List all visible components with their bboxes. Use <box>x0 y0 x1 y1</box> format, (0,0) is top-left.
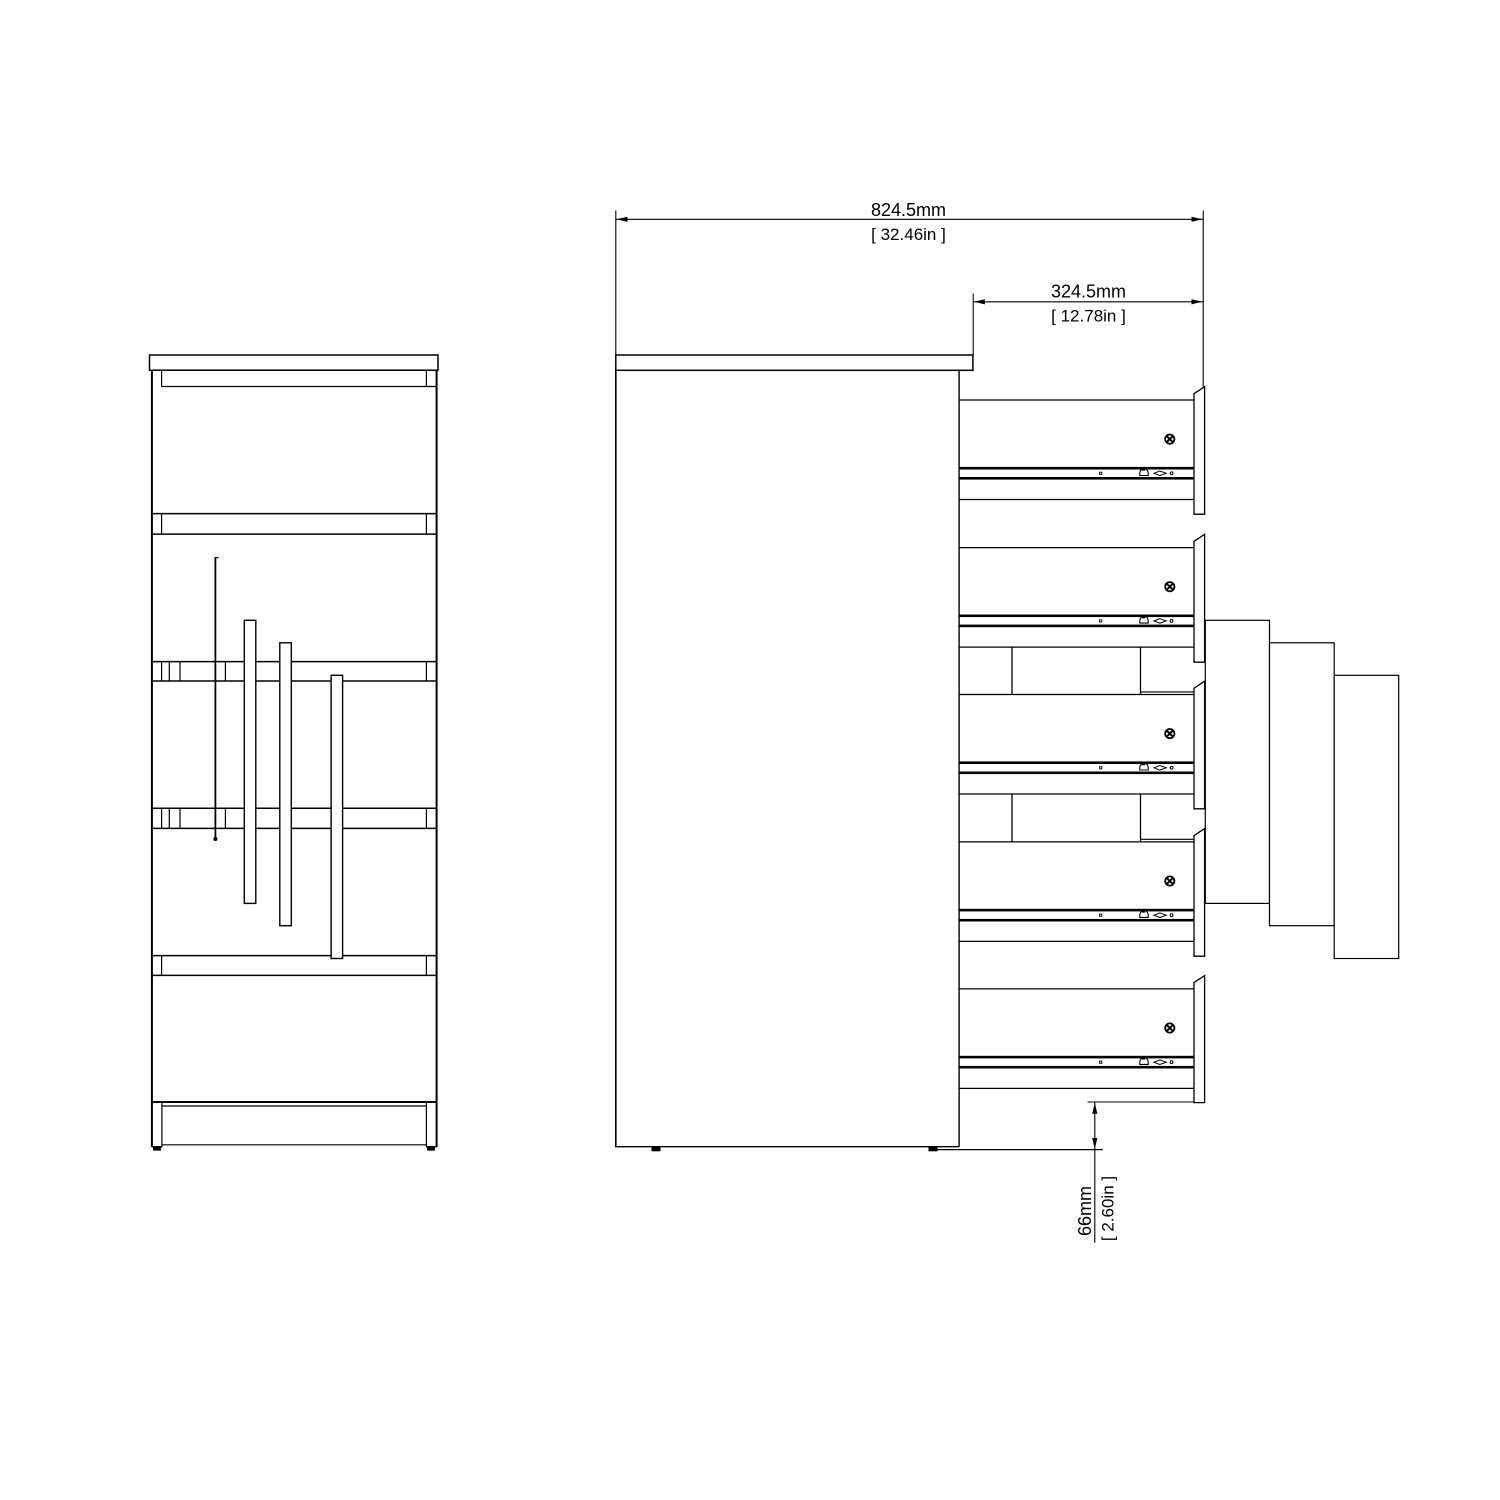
svg-text:66mm: 66mm <box>1075 1186 1095 1236</box>
svg-text:[ 12.78in ]: [ 12.78in ] <box>1051 307 1126 326</box>
svg-text:[ 32.46in ]: [ 32.46in ] <box>871 225 946 244</box>
svg-text:324.5mm: 324.5mm <box>1051 282 1126 302</box>
svg-text:[ 2.60in ]: [ 2.60in ] <box>1099 1176 1118 1241</box>
svg-text:824.5mm: 824.5mm <box>871 200 946 220</box>
